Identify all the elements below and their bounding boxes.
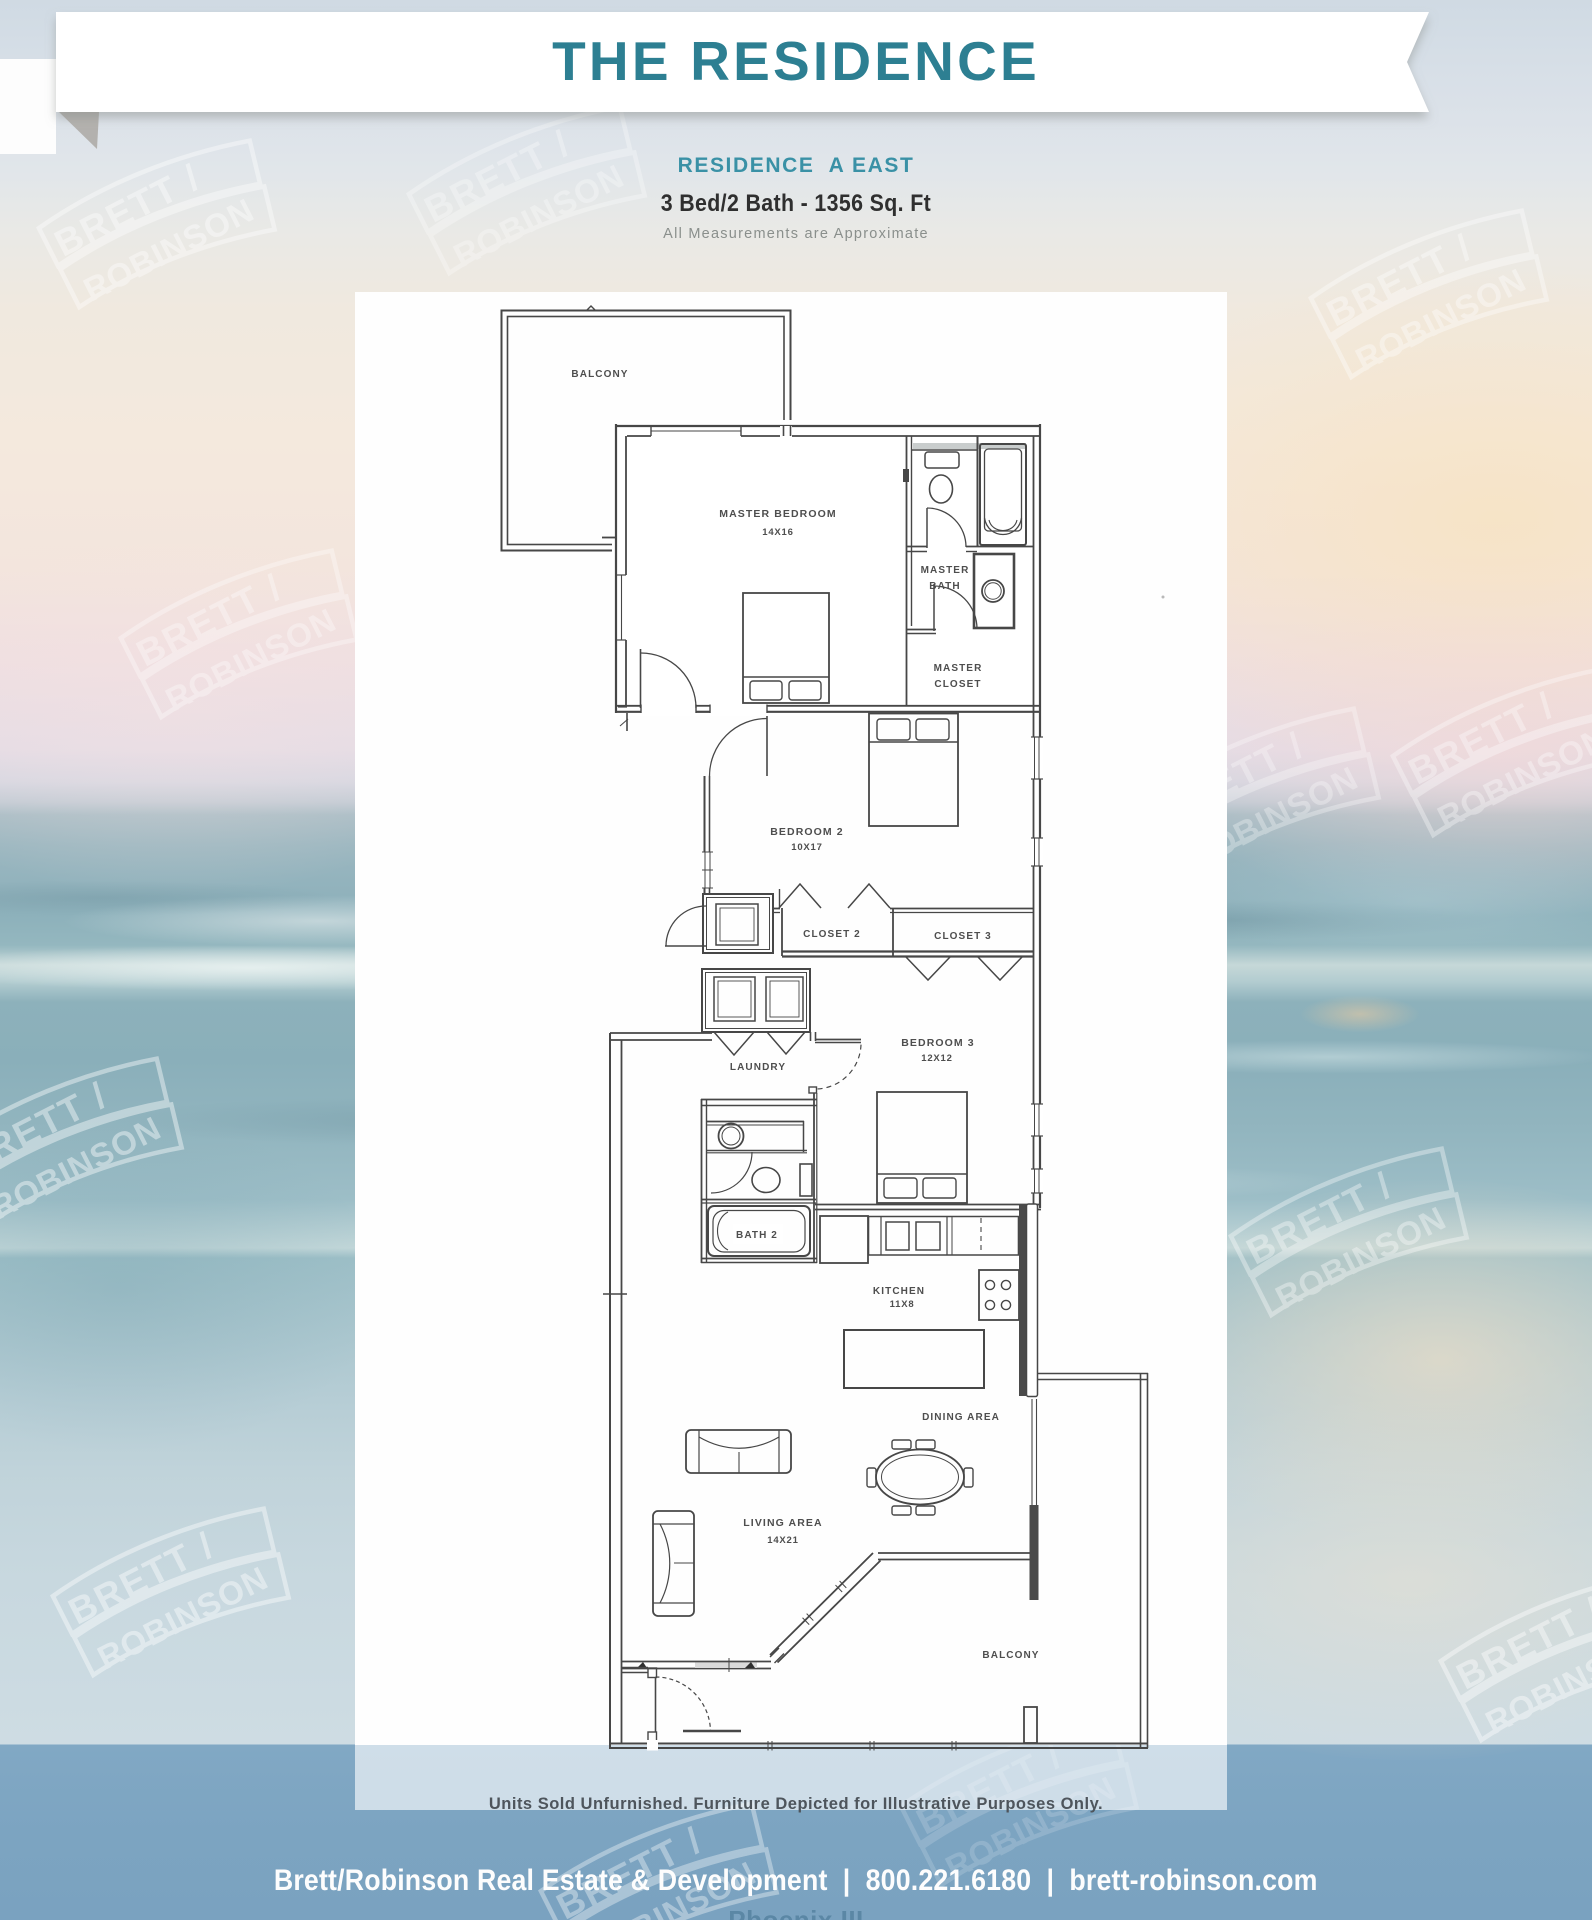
svg-text:MASTER: MASTER [934,663,983,674]
svg-text:BATH 2: BATH 2 [736,1230,778,1241]
svg-text:MASTER: MASTER [921,565,970,576]
svg-text:14X21: 14X21 [767,1535,798,1546]
svg-text:BALCONY: BALCONY [571,369,628,380]
svg-text:14X16: 14X16 [762,527,793,538]
svg-text:KITCHEN: KITCHEN [873,1286,925,1297]
svg-text:CLOSET: CLOSET [934,679,981,690]
svg-text:CLOSET 3: CLOSET 3 [934,931,992,942]
svg-text:MASTER BEDROOM: MASTER BEDROOM [719,508,836,520]
svg-text:LAUNDRY: LAUNDRY [730,1062,786,1073]
svg-text:DINING AREA: DINING AREA [922,1412,1000,1423]
svg-text:BEDROOM 3: BEDROOM 3 [901,1037,975,1049]
svg-text:CLOSET 2: CLOSET 2 [803,929,861,940]
svg-text:11X8: 11X8 [890,1299,915,1310]
svg-text:LIVING AREA: LIVING AREA [743,1517,822,1529]
svg-text:12X12: 12X12 [921,1053,952,1064]
svg-text:10X17: 10X17 [791,842,822,853]
svg-text:BALCONY: BALCONY [982,1650,1039,1661]
svg-text:BEDROOM 2: BEDROOM 2 [770,826,844,838]
